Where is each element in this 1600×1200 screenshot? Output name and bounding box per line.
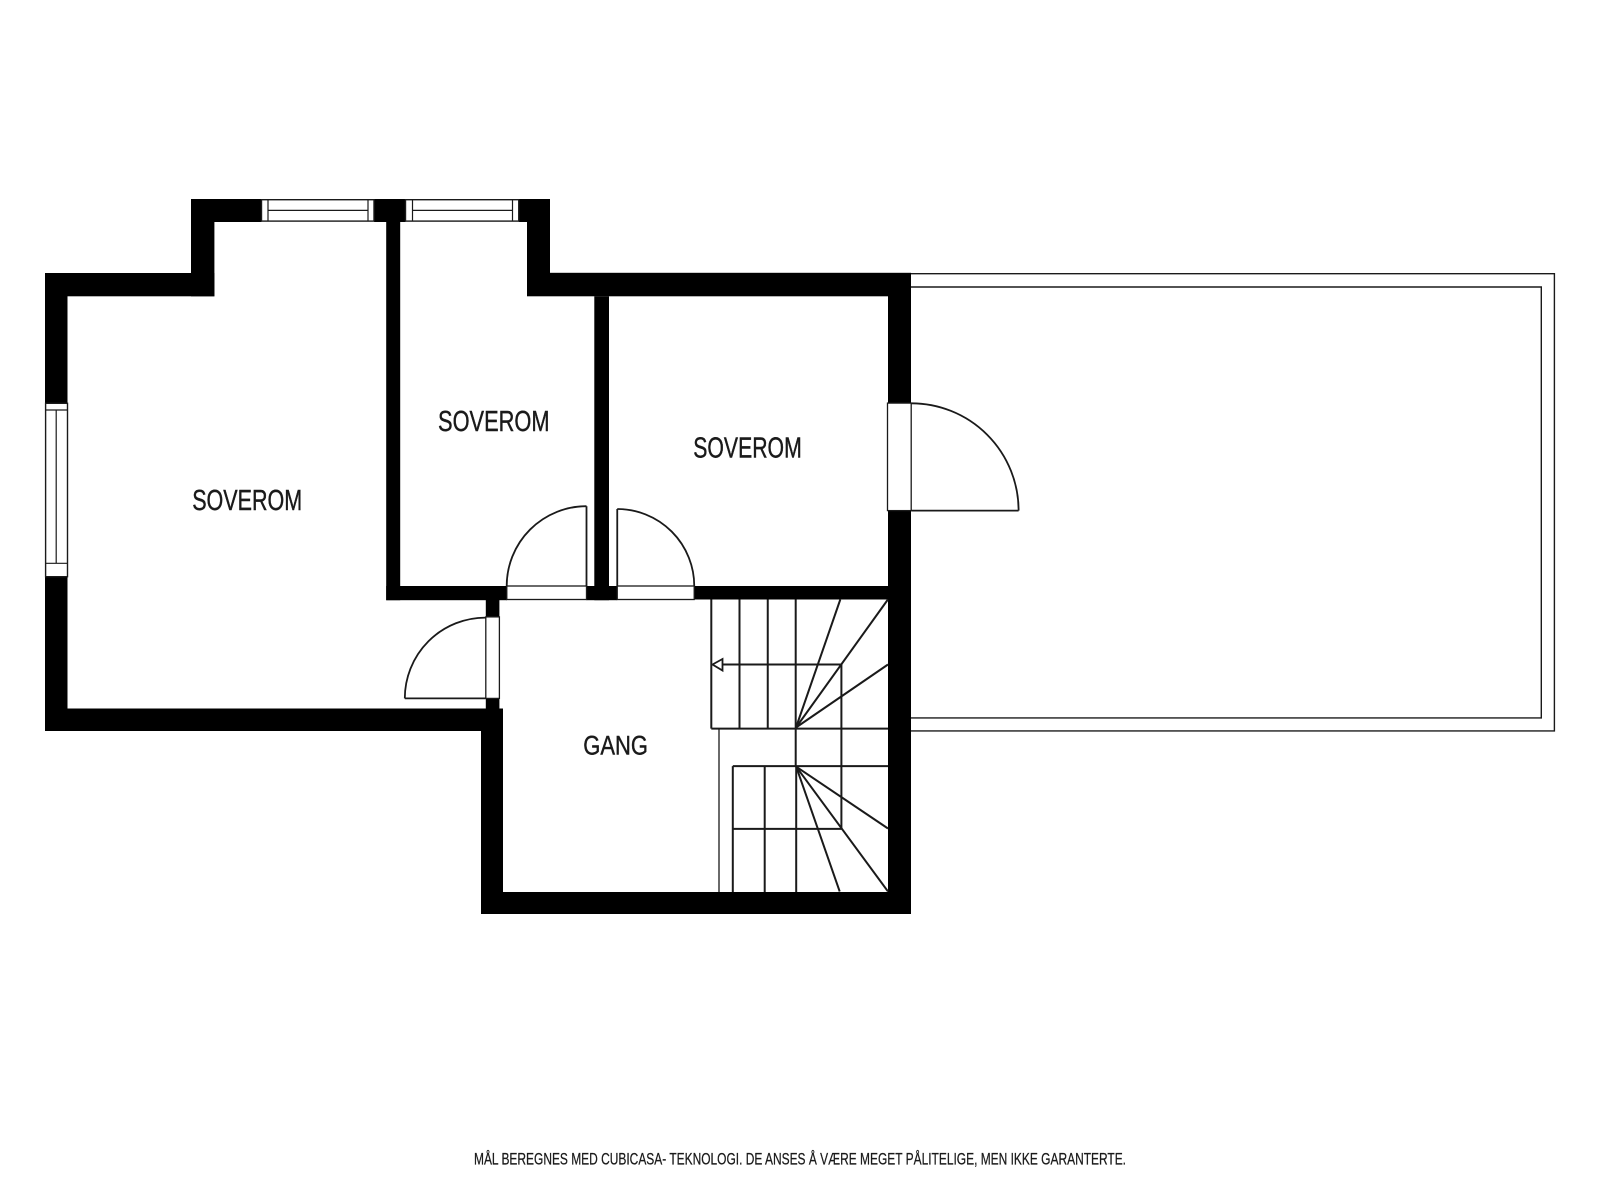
svg-text:SOVEROM: SOVEROM xyxy=(438,406,550,438)
svg-text:MÅL BEREGNES MED CUBICASA- TEK: MÅL BEREGNES MED CUBICASA- TEKNOLOGI. DE… xyxy=(474,1150,1126,1169)
svg-text:GANG: GANG xyxy=(583,731,648,761)
svg-text:SOVEROM: SOVEROM xyxy=(693,432,802,464)
svg-text:SOVEROM: SOVEROM xyxy=(192,485,302,517)
